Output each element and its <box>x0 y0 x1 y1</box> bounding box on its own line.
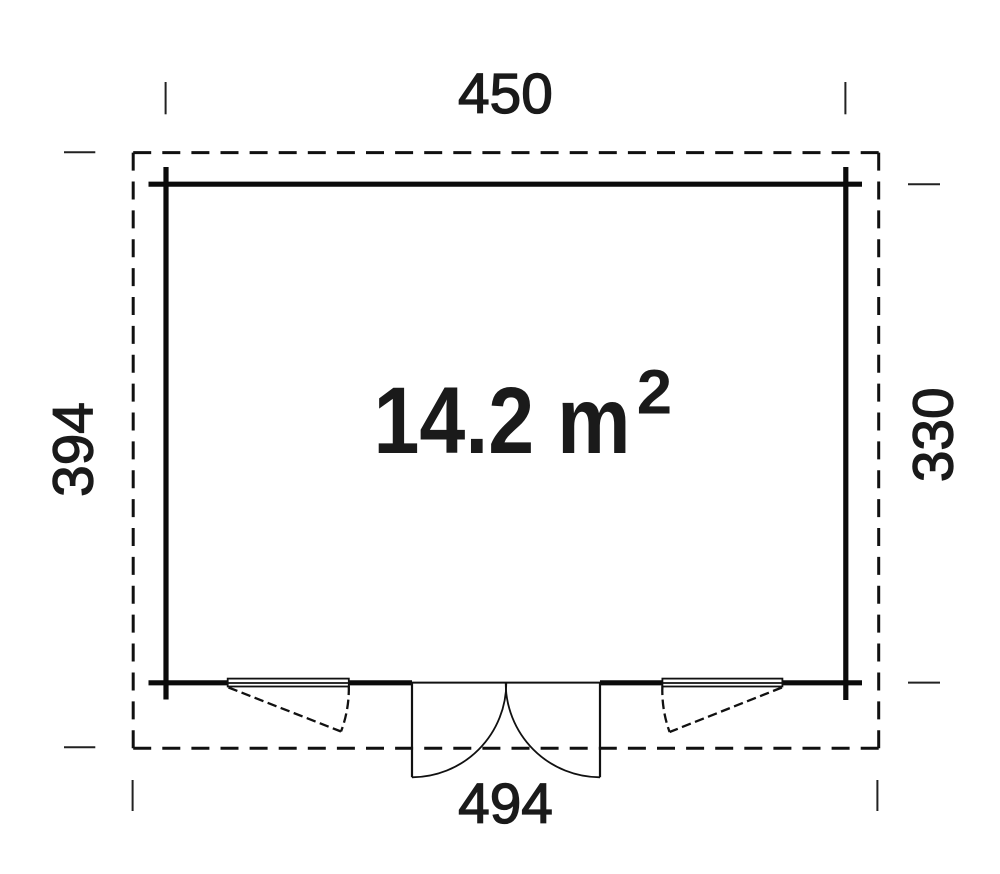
svg-text:330: 330 <box>902 387 965 482</box>
svg-text:2: 2 <box>637 358 672 428</box>
svg-text:394: 394 <box>43 402 106 497</box>
svg-text:14.2 m: 14.2 m <box>374 368 631 474</box>
svg-text:450: 450 <box>458 63 553 126</box>
svg-text:494: 494 <box>458 773 553 836</box>
